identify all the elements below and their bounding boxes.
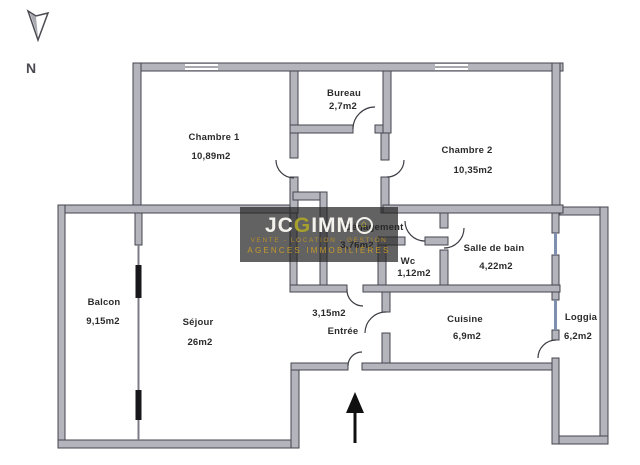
svg-text:3,15m2: 3,15m2 bbox=[312, 308, 345, 319]
wc-door-arc bbox=[405, 221, 425, 241]
svg-text:Bureau: Bureau bbox=[327, 88, 361, 99]
hall-door-arc bbox=[347, 289, 363, 306]
svg-text:6,2m2: 6,2m2 bbox=[564, 331, 592, 342]
north-compass: N bbox=[26, 11, 48, 76]
brand-o-ring: ⌂ bbox=[356, 217, 373, 234]
svg-text:6,9m2: 6,9m2 bbox=[453, 331, 481, 342]
brand-logo: JCGIMM⌂ bbox=[265, 215, 373, 236]
watermark: JCGIMM⌂ VENTE - LOCATION - GESTION AGENC… bbox=[240, 207, 398, 262]
room-label-chambre1: Chambre 1 10,89m2 bbox=[189, 132, 240, 162]
svg-text:Séjour: Séjour bbox=[183, 317, 214, 328]
svg-text:Balcon: Balcon bbox=[88, 297, 121, 308]
floor-plan-page: Chambre 1 10,89m2 Bureau 2,7m2 Chambre 2… bbox=[0, 0, 640, 465]
svg-text:Chambre 2: Chambre 2 bbox=[442, 145, 493, 156]
room-label-loggia: Loggia 6,2m2 bbox=[564, 312, 598, 342]
room-label-chambre2: Chambre 2 10,35m2 bbox=[442, 145, 493, 176]
chambre2-door-arc bbox=[387, 160, 404, 177]
chambre1-door-arc bbox=[276, 160, 294, 178]
svg-text:26m2: 26m2 bbox=[187, 337, 212, 348]
room-label-balcon: Balcon 9,15m2 bbox=[86, 297, 120, 327]
room-label-sejour: Séjour 26m2 bbox=[183, 317, 214, 348]
svg-text:Salle de bain: Salle de bain bbox=[464, 243, 525, 254]
svg-text:1,12m2: 1,12m2 bbox=[397, 268, 430, 279]
svg-text:9,15m2: 9,15m2 bbox=[86, 316, 119, 327]
north-label: N bbox=[26, 60, 36, 76]
watermark-tagline-1: VENTE - LOCATION - GESTION bbox=[251, 237, 388, 244]
svg-text:Cuisine: Cuisine bbox=[447, 314, 483, 325]
svg-text:2,7m2: 2,7m2 bbox=[329, 101, 357, 112]
entrance-arrow bbox=[346, 392, 364, 443]
brand-imm: IMM bbox=[311, 215, 355, 236]
brand-g: G bbox=[294, 215, 311, 236]
svg-text:Wc: Wc bbox=[401, 256, 416, 267]
room-label-wc: Wc 1,12m2 bbox=[397, 256, 430, 279]
watermark-tagline-2: AGENCES IMMOBILIÈRES bbox=[247, 246, 390, 255]
room-label-bureau: Bureau 2,7m2 bbox=[327, 88, 361, 112]
svg-text:Chambre 1: Chambre 1 bbox=[189, 132, 240, 143]
room-label-entree: 3,15m2 Entrée bbox=[312, 308, 358, 337]
svg-text:Entrée: Entrée bbox=[328, 326, 359, 337]
room-label-cuisine: Cuisine 6,9m2 bbox=[447, 314, 483, 342]
room-label-salle-de-bain: Salle de bain 4,22m2 bbox=[464, 243, 525, 272]
svg-text:4,22m2: 4,22m2 bbox=[479, 261, 512, 272]
svg-text:10,35m2: 10,35m2 bbox=[454, 165, 493, 176]
house-icon: ⌂ bbox=[361, 220, 368, 230]
svg-text:10,89m2: 10,89m2 bbox=[192, 151, 231, 162]
svg-text:Loggia: Loggia bbox=[565, 312, 598, 323]
brand-jc: JC bbox=[265, 215, 294, 236]
loggia-door-arc bbox=[538, 340, 556, 358]
cuisine-door-arc bbox=[365, 312, 386, 333]
entrance-door-arc bbox=[348, 352, 362, 366]
